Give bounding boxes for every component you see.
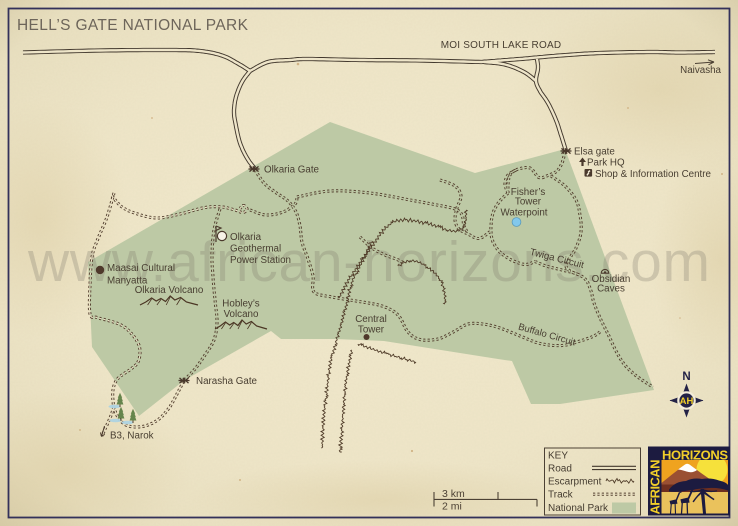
svg-text:Olkaria Volcano: Olkaria Volcano <box>135 285 204 296</box>
svg-text:Olkaria: Olkaria <box>230 232 262 243</box>
svg-text:Olkaria Gate: Olkaria Gate <box>264 165 320 176</box>
svg-text:B3, Narok: B3, Narok <box>110 431 154 442</box>
svg-text:Narasha Gate: Narasha Gate <box>196 376 258 387</box>
svg-text:KEY: KEY <box>548 451 568 462</box>
svg-text:2 mi: 2 mi <box>442 501 462 513</box>
svg-text:Park HQ: Park HQ <box>587 158 625 169</box>
svg-text:Hobley’s: Hobley’s <box>222 299 259 310</box>
svg-text:AFRICAN: AFRICAN <box>648 460 663 515</box>
svg-text:Geothermal: Geothermal <box>230 244 281 255</box>
svg-text:MOI SOUTH LAKE ROAD: MOI SOUTH LAKE ROAD <box>441 40 562 51</box>
svg-text:National Park: National Park <box>548 503 609 514</box>
svg-text:Escarpment: Escarpment <box>548 477 602 488</box>
svg-text:Tower: Tower <box>358 325 385 336</box>
svg-text:Road: Road <box>548 464 572 475</box>
svg-text:Elsa gate: Elsa gate <box>574 147 615 158</box>
svg-text:Naivasha: Naivasha <box>680 65 721 76</box>
svg-text:Tower: Tower <box>515 197 542 208</box>
svg-text:Central: Central <box>355 314 387 325</box>
svg-text:3 km: 3 km <box>442 488 465 500</box>
svg-text:Shop & Information Centre: Shop & Information Centre <box>595 169 712 180</box>
svg-text:HELL’S GATE NATIONAL PARK: HELL’S GATE NATIONAL PARK <box>17 17 249 34</box>
svg-text:Power Station: Power Station <box>230 255 291 266</box>
svg-text:Maasai Cultural: Maasai Cultural <box>107 263 175 274</box>
svg-text:Caves: Caves <box>597 284 625 295</box>
svg-text:Track: Track <box>548 490 574 501</box>
svg-text:AH: AH <box>680 396 694 407</box>
svg-text:N: N <box>682 371 690 383</box>
svg-text:Volcano: Volcano <box>224 309 259 320</box>
svg-text:Waterpoint: Waterpoint <box>500 208 547 219</box>
